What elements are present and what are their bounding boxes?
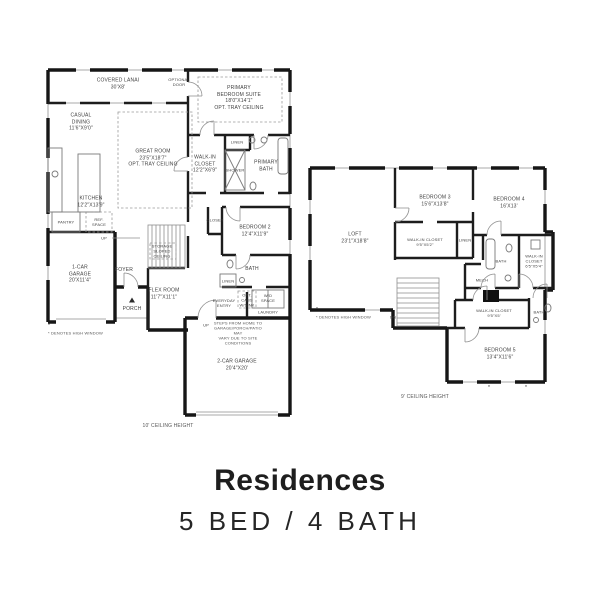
label-walk-in-closet: WALK-IN CLOSET 12'2"X6'9" [193, 154, 217, 174]
label-everyday-entry: EVERYDAY ENTRY [213, 298, 236, 308]
label-casual-dining: CASUAL DINING 11'6"X9'0" [69, 112, 93, 132]
label-flex-room: FLEX ROOM 11'7"X11'1" [149, 288, 180, 301]
floor1-ceiling-note: 10' CEILING HEIGHT [143, 423, 194, 430]
label-one-car-garage: 1-CAR GARAGE 20'X11'4" [69, 264, 91, 284]
label-laundry: LAUNDRY [258, 310, 278, 315]
plan-footer: Residences 5 BED / 4 BATH [0, 464, 600, 537]
label-storage: STORAGE SLOPED CEILING [152, 244, 173, 259]
floor2-window-note: * DENOTES HIGH WINDOW [316, 315, 371, 320]
label-bath2: BATH [496, 259, 507, 264]
label-ref-space: REF. SPACE [92, 217, 106, 227]
window-marker: * [48, 323, 50, 330]
label-linen-f2: LINEN [459, 238, 472, 243]
plan-title: Residences [0, 464, 600, 498]
stairs-floor2 [397, 278, 439, 326]
label-covered-lanai: COVERED LANAI 30'X8' [97, 78, 140, 91]
label-mech: MECH [476, 278, 488, 283]
label-two-car-garage: 2-CAR GARAGE 20'4"X20' [217, 359, 257, 372]
label-foyer: FOYER [115, 267, 133, 274]
label-primary-bath: PRIMARY BATH [254, 160, 278, 173]
label-wd-space: W/D SPACE [261, 293, 275, 303]
label-steps-note: STEPS FROM HOME TO GARAGE/PORCH/PATIO MA… [210, 321, 267, 346]
door-swings-floor1 [112, 82, 268, 318]
label-shower: SHOWER [226, 168, 245, 173]
label-primary-suite: PRIMARY BEDROOM SUITE 18'0"X14'1" OPT. T… [214, 85, 263, 111]
label-wic-bedroom3: WALK-IN CLOSET 9'5"X5'2" [407, 237, 443, 247]
label-pantry: PANTRY [58, 220, 75, 225]
label-linen: LINEN [231, 140, 244, 145]
label-opt-cabs: OPT. CABS W/SINK [239, 293, 254, 308]
label-up-garage: UP [203, 323, 209, 328]
label-optional-door: OPTIONAL DOOR [168, 77, 189, 87]
label-porch: PORCH [123, 306, 142, 313]
label-closet: CLOSET [207, 218, 224, 223]
label-wic-bedroom4: WALK-IN CLOSET 6'5"X5'4" [525, 254, 543, 269]
label-bedroom4: BEDROOM 4 16'X13' [493, 197, 524, 210]
label-bath3: BATH [534, 310, 545, 315]
floor1-window-note: * DENOTES HIGH WINDOW [48, 331, 103, 336]
label-bedroom2: BEDROOM 2 12'4"X11'9" [239, 225, 270, 238]
label-bedroom5: BEDROOM 5 13'4"X11'6" [484, 348, 515, 361]
door-swings-floor2 [395, 208, 547, 342]
window-marker: * [488, 385, 490, 392]
label-dn: DN [390, 315, 396, 320]
label-bedroom3: BEDROOM 3 15'6"X13'8" [419, 195, 450, 208]
floor2-plan: LOFT 23'1"X18'8" BEDROOM 3 15'6"X13'8" B… [305, 160, 557, 405]
label-great-room: GREAT ROOM 23'5"X18'7" OPT. TRAY CEILING [128, 148, 177, 168]
label-linen2: LINEN [222, 279, 235, 284]
label-bath: BATH [245, 266, 259, 273]
label-kitchen: KITCHEN 12'2"X13'9" [77, 196, 104, 209]
window-marker: * [525, 385, 527, 392]
plan-subtitle: 5 BED / 4 BATH [0, 506, 600, 537]
mech-chase [483, 290, 499, 302]
window-marker: * [316, 307, 318, 314]
floor1-plan: COVERED LANAI 30'X8' OPTIONAL DOOR CASUA… [40, 62, 295, 434]
label-wic-bedroom5: WALK-IN CLOSET 9'5"X5' [476, 308, 512, 318]
porch-marker-icon [129, 298, 135, 303]
floorplan-sheet: COVERED LANAI 30'X8' OPTIONAL DOOR CASUA… [0, 0, 600, 600]
label-up-stairs: UP [101, 236, 107, 241]
label-loft: LOFT 23'1"X18'8" [341, 232, 368, 245]
floor2-ceiling-note: 9' CEILING HEIGHT [401, 394, 449, 401]
